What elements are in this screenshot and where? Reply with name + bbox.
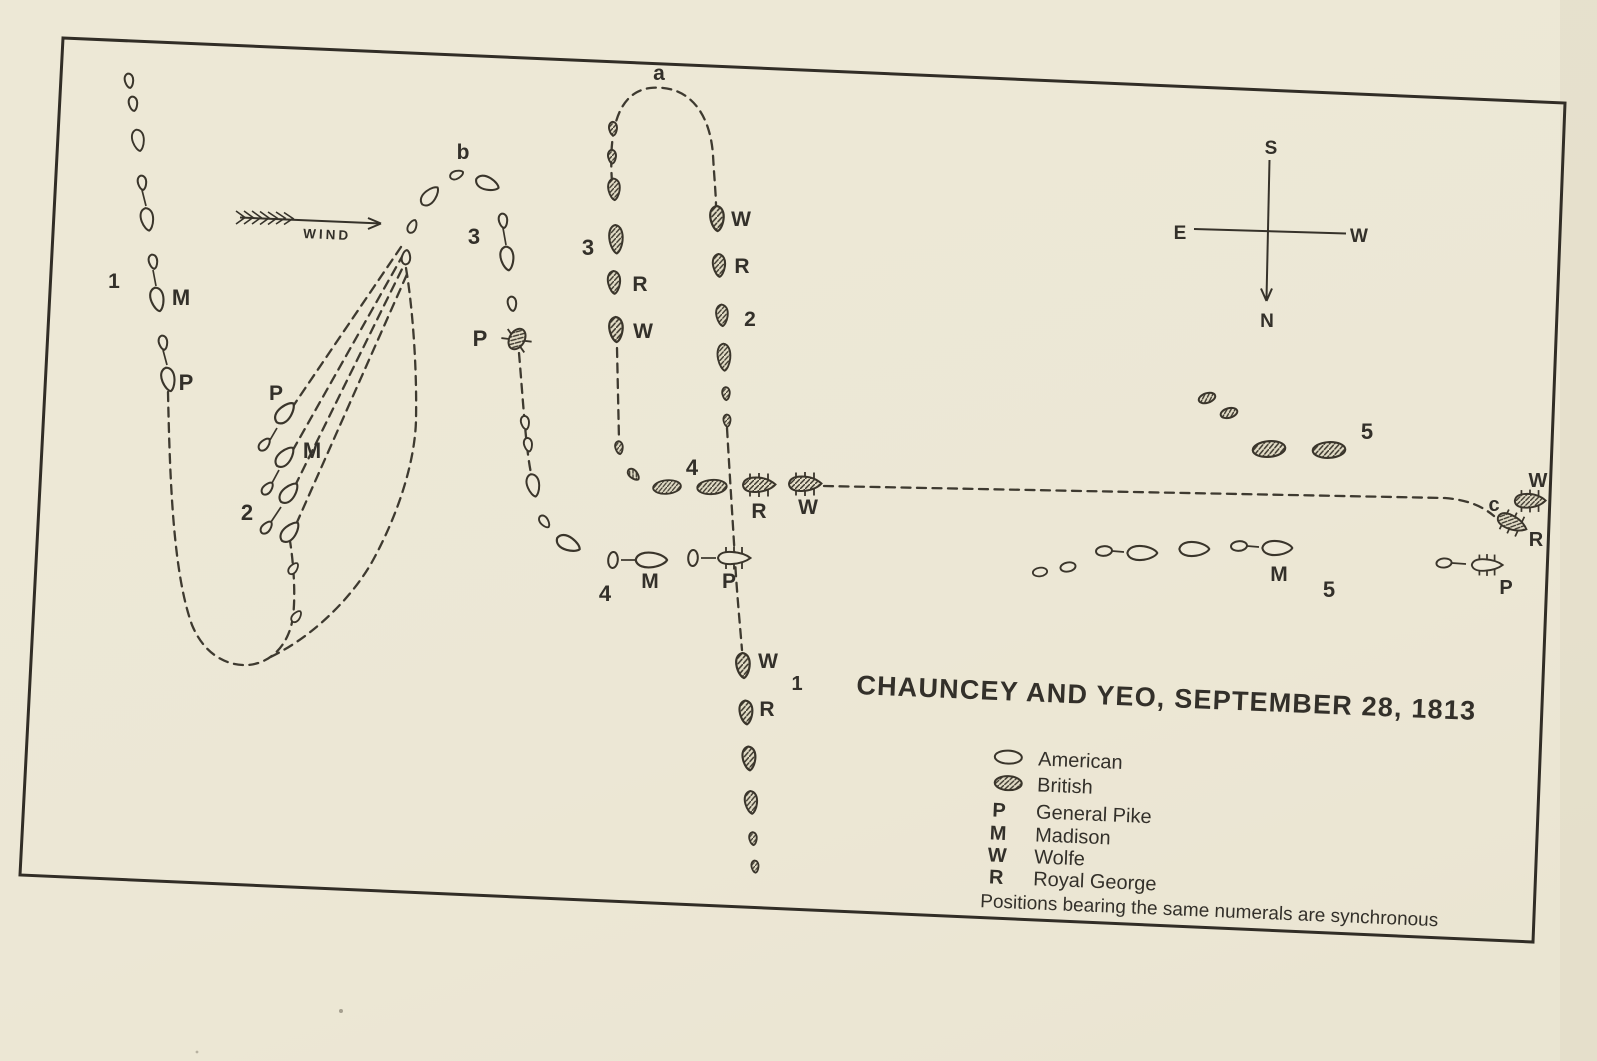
map-label-3: 3 <box>582 235 594 260</box>
legend-label-american: American <box>1038 748 1123 774</box>
map-label-M: M <box>172 285 190 310</box>
ship-uk-sm <box>608 150 617 164</box>
ship-tow-link <box>1112 551 1124 552</box>
paper-edge-shade <box>1560 0 1597 1061</box>
map-label-c: c <box>1488 494 1499 516</box>
ship-tow-link <box>1452 563 1466 564</box>
legend-key-royal-george: R <box>989 866 1005 889</box>
ship-uk-sm <box>723 414 731 427</box>
map-label-W: W <box>1529 470 1548 492</box>
map-label-W: W <box>731 208 751 231</box>
map-label-3: 3 <box>468 224 480 249</box>
map-label-M: M <box>641 570 659 593</box>
map-label-P: P <box>179 370 194 395</box>
ship-us-lg <box>1262 541 1292 555</box>
compass-south: S <box>1265 138 1278 159</box>
ship-us-ov <box>608 552 619 569</box>
ship-us-ov <box>688 550 698 566</box>
ship-uk-ov <box>1312 441 1345 458</box>
legend-label-wolfe: Wolfe <box>1034 846 1086 870</box>
map-label-4: 4 <box>686 455 699 480</box>
ship-uk-sm <box>722 387 730 400</box>
map-label-5: 5 <box>1323 577 1335 602</box>
legend-american-symbol <box>995 750 1023 764</box>
ship-us-ov <box>1096 546 1113 557</box>
map-label-R: R <box>751 500 766 523</box>
map-label-R: R <box>632 273 647 296</box>
map-label-R: R <box>734 255 749 278</box>
map-label-1: 1 <box>791 673 802 695</box>
map-label-M: M <box>1270 563 1288 586</box>
legend-key-pike: P <box>992 800 1006 823</box>
map-label-a: a <box>653 62 665 85</box>
ship-us-ov <box>1436 558 1452 568</box>
legend-key-wolfe: W <box>987 844 1007 867</box>
legend-label-british: British <box>1037 774 1093 798</box>
ship-tow-link <box>1247 546 1259 547</box>
map-label-W: W <box>633 320 653 343</box>
legend-label-madison: Madison <box>1035 824 1111 849</box>
compass-west: W <box>1350 226 1368 247</box>
ship-uk-sm <box>609 122 618 136</box>
map-label-P: P <box>722 570 736 593</box>
legend-key-madison: M <box>989 822 1007 845</box>
map-label-b: b <box>457 141 470 164</box>
paper-speck <box>339 1009 343 1013</box>
map-label-4: 4 <box>599 581 612 606</box>
map-label-R: R <box>1529 529 1544 551</box>
ship-us-lg <box>1127 546 1157 560</box>
compass-east: E <box>1174 223 1187 244</box>
map-label-M: M <box>303 438 321 463</box>
map-label-P: P <box>473 326 488 351</box>
ship-us-lg <box>1179 542 1209 556</box>
ship-us-lg <box>636 553 667 568</box>
map-label-R: R <box>759 698 774 721</box>
map-label-W: W <box>798 496 818 519</box>
map-label-2: 2 <box>744 308 756 331</box>
compass-north: N <box>1260 311 1274 332</box>
paper-speck <box>196 1051 199 1054</box>
paper-background <box>0 0 1597 1061</box>
ship-us-ov <box>1231 541 1248 552</box>
map-label-5: 5 <box>1361 419 1373 444</box>
map-label-P: P <box>269 382 283 405</box>
map-label-W: W <box>758 650 778 673</box>
scanned-page: WIND S N E W ab3PPM21MP3RWWR24RW4MPW1R5M… <box>0 0 1597 1061</box>
map-label-2: 2 <box>241 500 253 525</box>
battle-diagram: WIND S N E W ab3PPM21MP3RWWR24RW4MPW1R5M… <box>0 0 1597 1061</box>
map-label-1: 1 <box>108 270 120 293</box>
map-label-P: P <box>1499 577 1512 599</box>
wind-label: WIND <box>303 226 352 243</box>
legend-british-symbol <box>994 776 1022 791</box>
